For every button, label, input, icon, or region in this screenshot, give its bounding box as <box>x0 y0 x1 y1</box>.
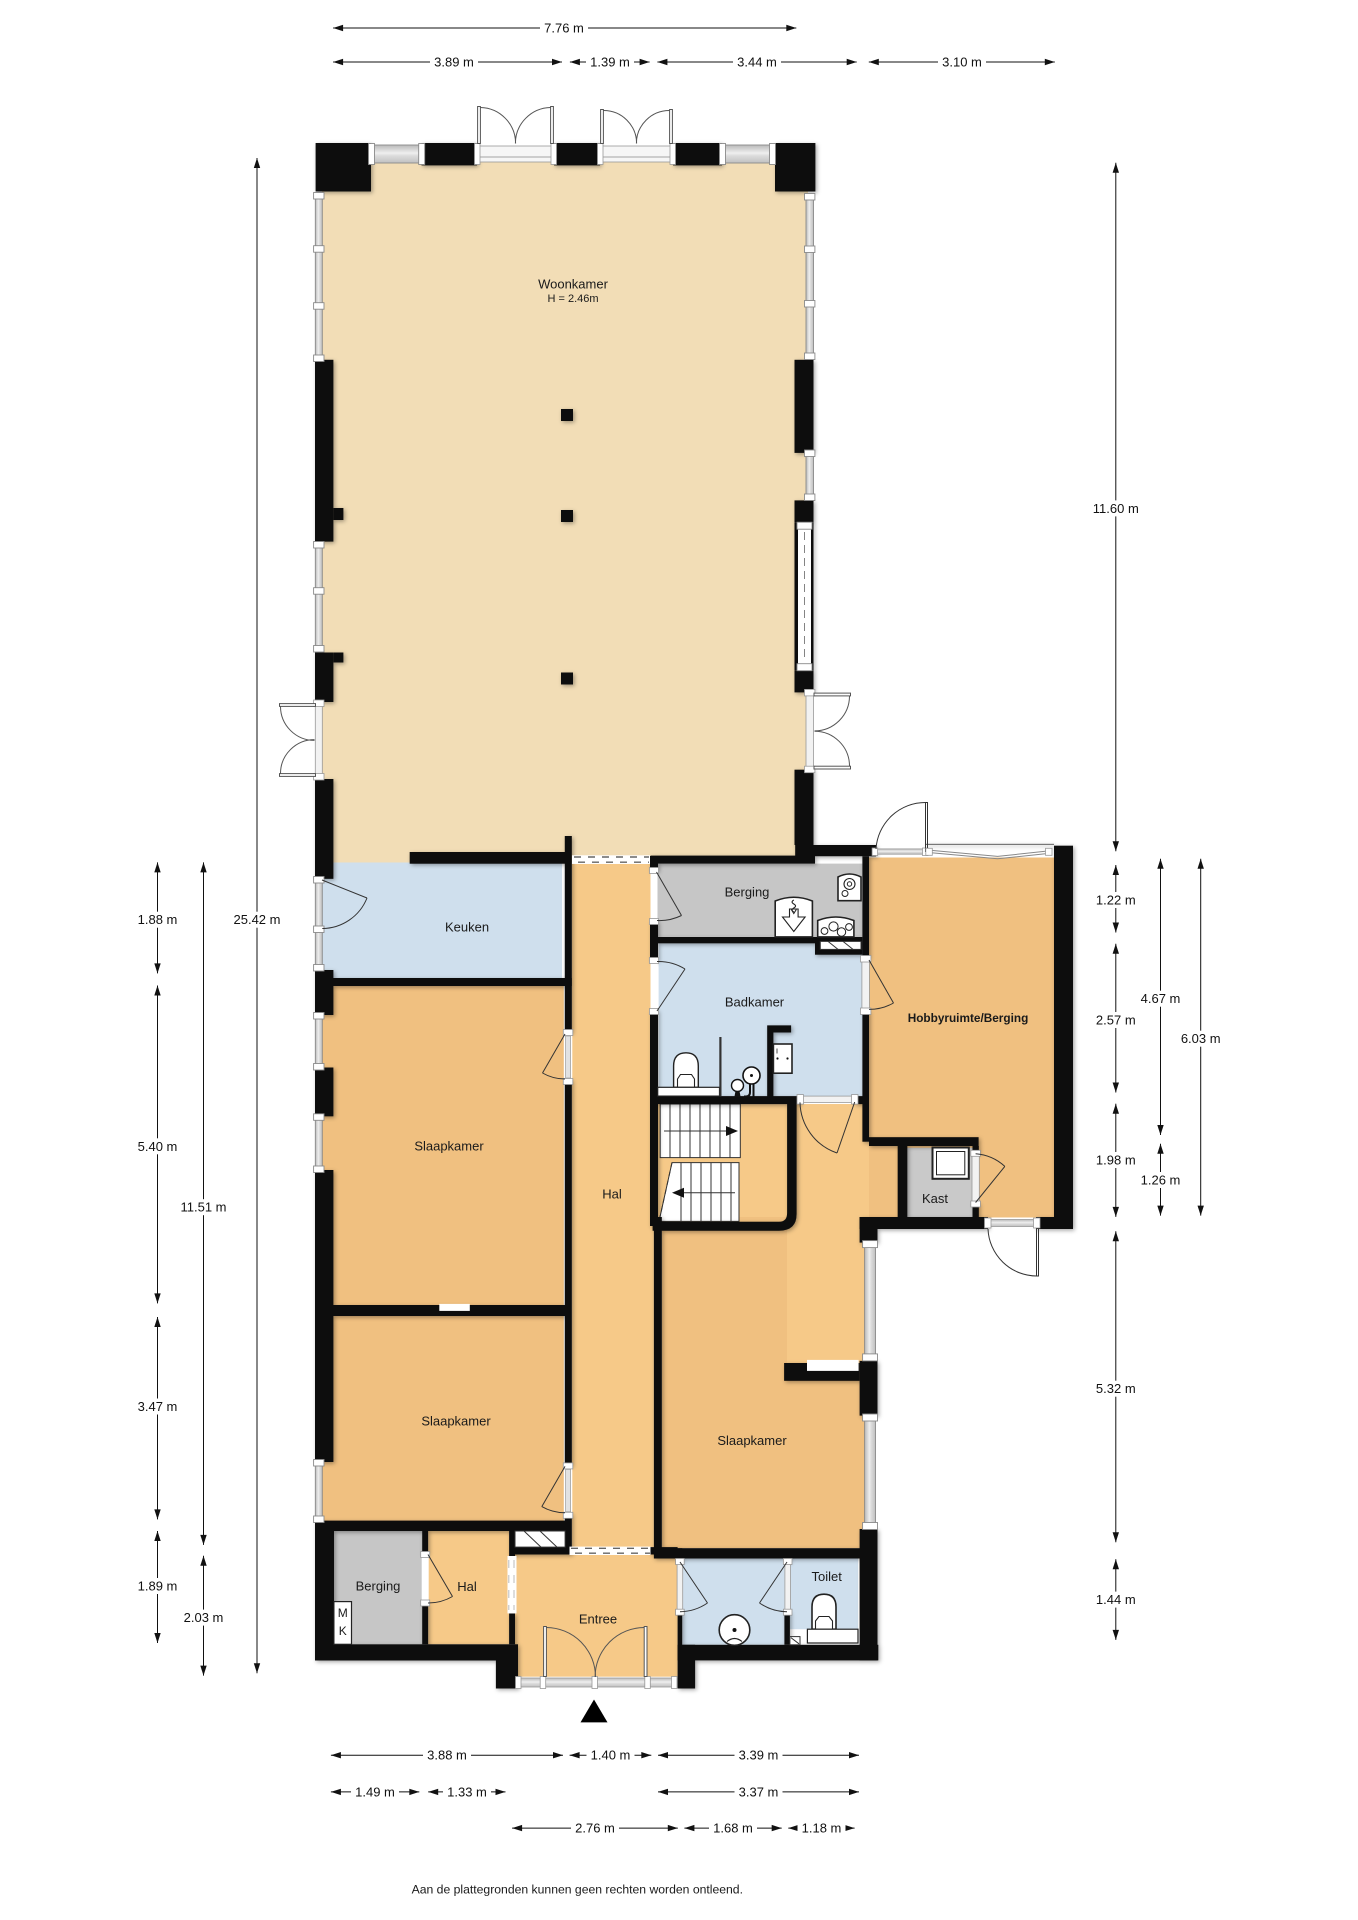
svg-text:Hobbyruimte/Berging: Hobbyruimte/Berging <box>908 1011 1029 1025</box>
svg-text:Aan de plattegronden kunnen ge: Aan de plattegronden kunnen geen rechten… <box>412 1883 743 1897</box>
svg-text:1.40 m: 1.40 m <box>591 1748 631 1763</box>
svg-text:Kast: Kast <box>922 1191 948 1206</box>
svg-text:Badkamer: Badkamer <box>725 995 785 1010</box>
svg-text:1.89 m: 1.89 m <box>138 1579 178 1594</box>
svg-text:K: K <box>339 1624 347 1638</box>
svg-text:1.39 m: 1.39 m <box>590 55 630 70</box>
svg-text:Entree: Entree <box>579 1612 617 1627</box>
svg-text:5.32 m: 5.32 m <box>1096 1381 1136 1396</box>
svg-text:1.49 m: 1.49 m <box>355 1784 395 1799</box>
svg-text:Hal: Hal <box>457 1579 477 1594</box>
svg-text:Keuken: Keuken <box>445 920 489 935</box>
svg-text:1.44 m: 1.44 m <box>1096 1592 1136 1607</box>
svg-text:1.22 m: 1.22 m <box>1096 893 1136 908</box>
svg-text:3.39 m: 3.39 m <box>739 1748 779 1763</box>
svg-text:11.60 m: 11.60 m <box>1093 501 1139 516</box>
svg-text:Berging: Berging <box>725 885 770 900</box>
svg-text:Slaapkamer: Slaapkamer <box>421 1414 491 1429</box>
svg-text:M: M <box>338 1606 348 1620</box>
svg-text:1.68 m: 1.68 m <box>713 1821 753 1836</box>
svg-text:2.03 m: 2.03 m <box>184 1610 224 1625</box>
svg-text:4.67 m: 4.67 m <box>1141 991 1181 1006</box>
svg-text:3.37 m: 3.37 m <box>739 1784 779 1799</box>
svg-text:Toilet: Toilet <box>812 1569 843 1584</box>
svg-text:1.26 m: 1.26 m <box>1141 1173 1181 1188</box>
svg-text:5.40 m: 5.40 m <box>138 1139 178 1154</box>
svg-text:3.47 m: 3.47 m <box>138 1399 178 1414</box>
svg-text:H = 2.46m: H = 2.46m <box>547 293 598 305</box>
svg-text:3.89 m: 3.89 m <box>434 55 474 70</box>
svg-text:Slaapkamer: Slaapkamer <box>414 1139 484 1154</box>
svg-text:7.76 m: 7.76 m <box>544 21 584 36</box>
svg-text:25.42 m: 25.42 m <box>234 912 281 927</box>
svg-text:Slaapkamer: Slaapkamer <box>717 1433 787 1448</box>
svg-text:2.57 m: 2.57 m <box>1096 1013 1136 1028</box>
svg-text:1.18 m: 1.18 m <box>802 1821 842 1836</box>
svg-text:3.88 m: 3.88 m <box>427 1748 467 1763</box>
svg-text:1.98 m: 1.98 m <box>1096 1153 1136 1168</box>
svg-text:6.03 m: 6.03 m <box>1181 1031 1221 1046</box>
svg-text:3.44 m: 3.44 m <box>737 55 777 70</box>
svg-text:2.76 m: 2.76 m <box>575 1821 615 1836</box>
svg-text:Hal: Hal <box>602 1187 622 1202</box>
svg-text:11.51 m: 11.51 m <box>180 1200 226 1215</box>
svg-text:Woonkamer: Woonkamer <box>538 277 609 292</box>
svg-text:Berging: Berging <box>356 1579 401 1594</box>
svg-text:1.33 m: 1.33 m <box>447 1784 487 1799</box>
svg-text:3.10 m: 3.10 m <box>942 55 982 70</box>
svg-text:1.88 m: 1.88 m <box>138 912 178 927</box>
